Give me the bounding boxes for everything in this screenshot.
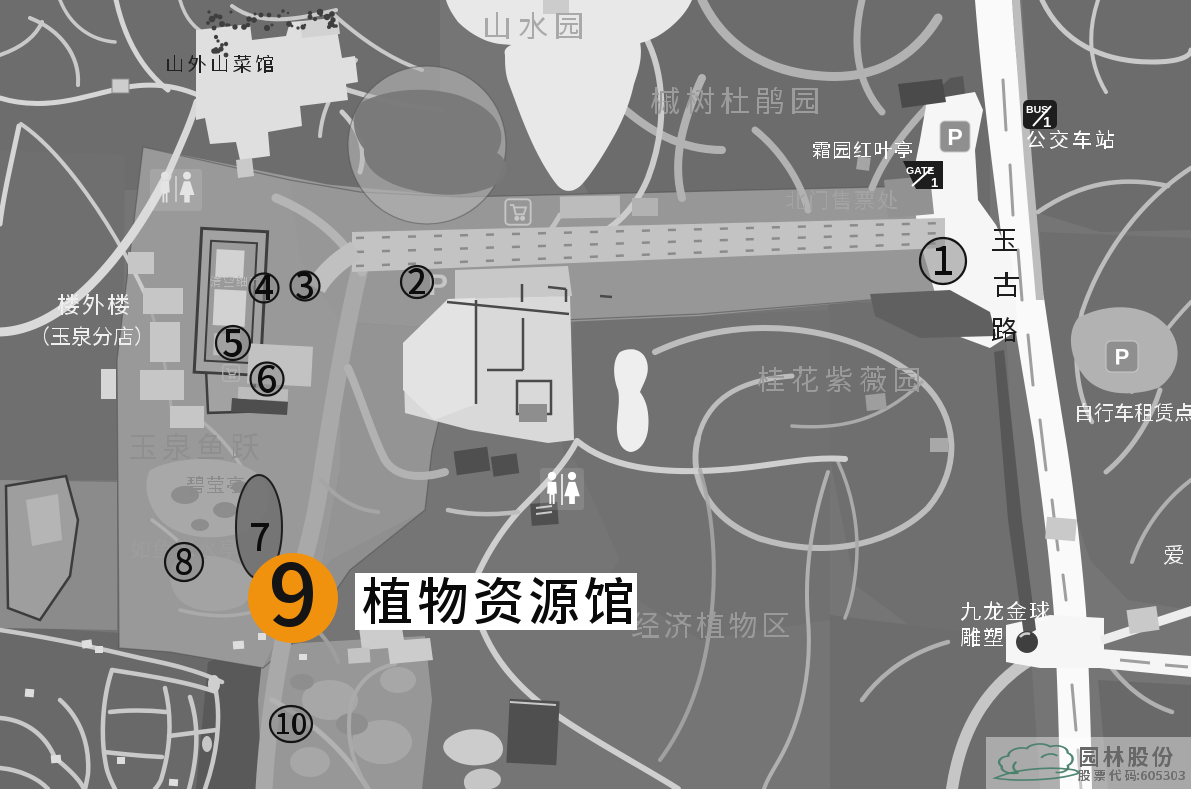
svg-text:P: P: [1115, 344, 1130, 369]
svg-text:1: 1: [931, 175, 938, 190]
svg-text:1: 1: [1043, 114, 1051, 131]
svg-text:P: P: [947, 124, 962, 150]
